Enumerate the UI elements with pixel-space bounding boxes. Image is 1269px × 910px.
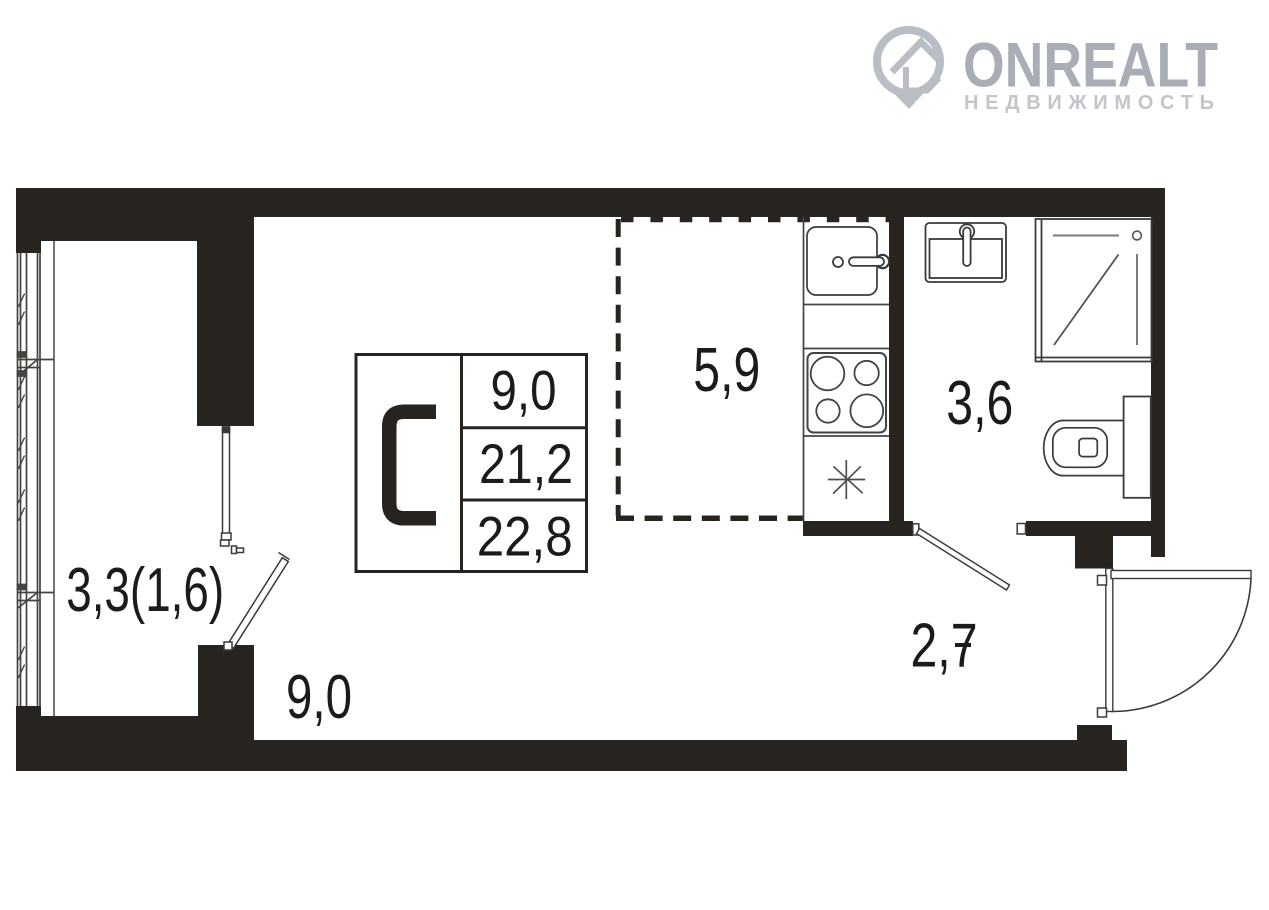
svg-text:9,0: 9,0 — [491, 359, 557, 422]
svg-text:ONREALT: ONREALT — [963, 31, 1218, 101]
svg-text:3,3(1,6): 3,3(1,6) — [66, 556, 224, 625]
svg-text:21,2: 21,2 — [479, 432, 573, 495]
svg-text:5,9: 5,9 — [693, 336, 760, 405]
svg-text:22,8: 22,8 — [477, 505, 573, 568]
svg-text:3,6: 3,6 — [946, 369, 1013, 438]
svg-text:9,0: 9,0 — [286, 663, 352, 732]
